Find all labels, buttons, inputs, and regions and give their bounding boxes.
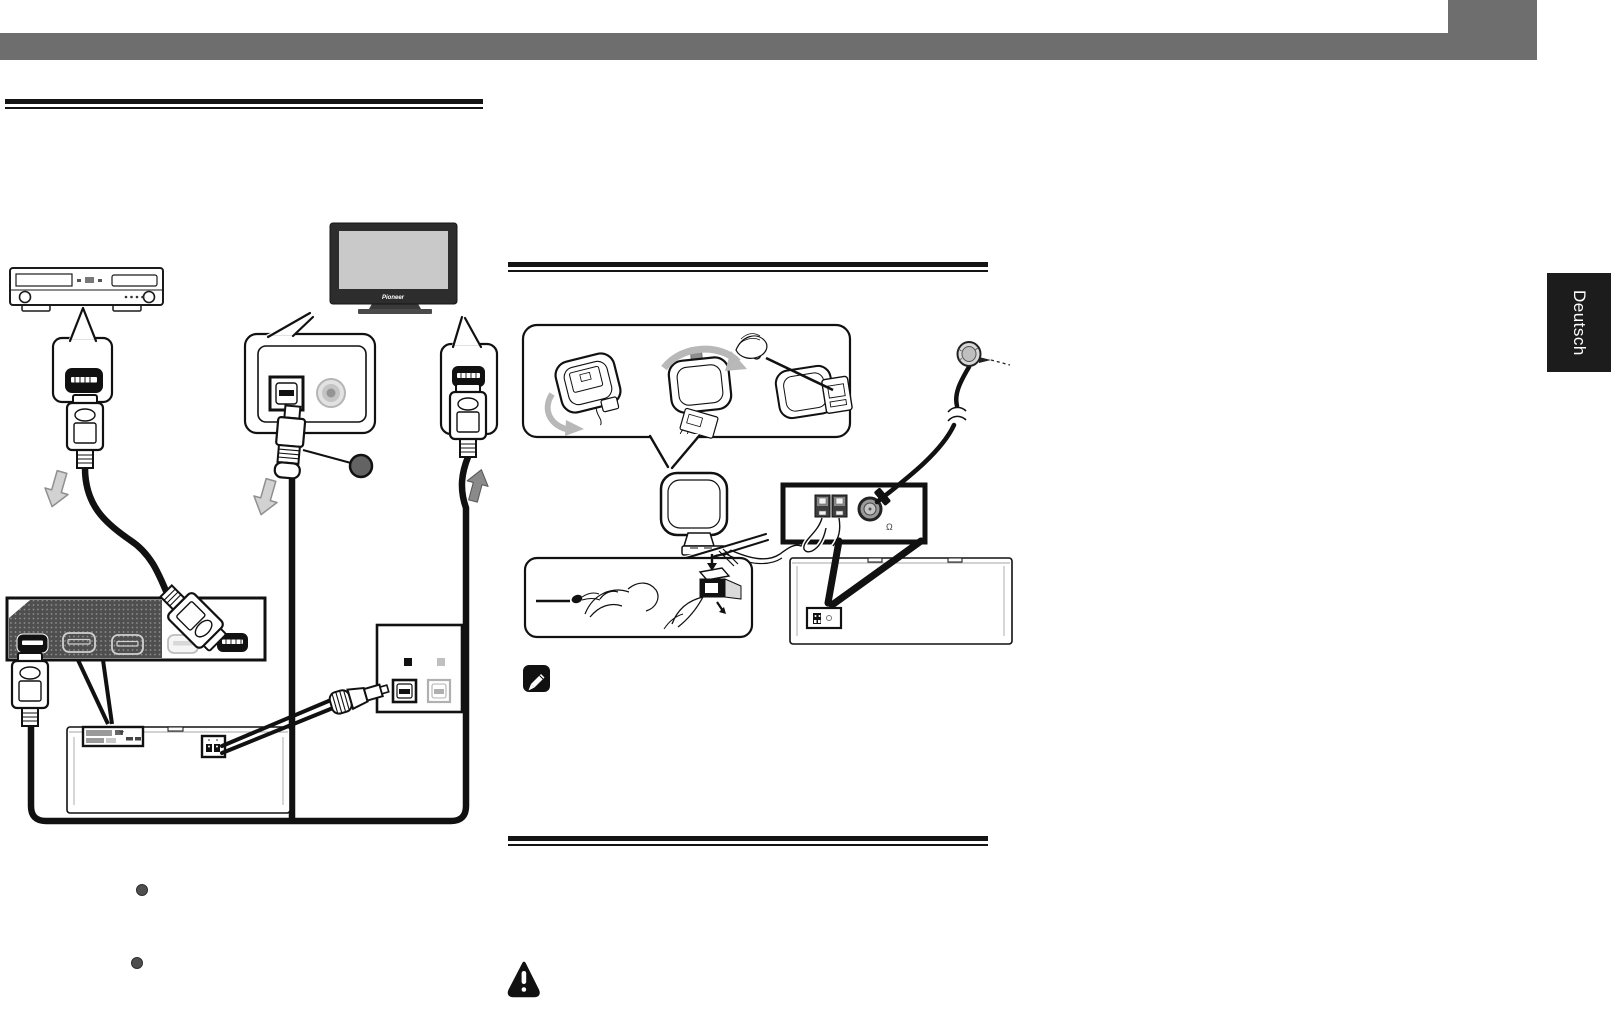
am-loop-antenna xyxy=(661,473,727,555)
bluray-player xyxy=(10,268,163,311)
manual-page: Deutsch xyxy=(0,0,1611,1018)
signal-arrow-down-2 xyxy=(250,477,283,518)
player-hdmi-callout xyxy=(53,306,112,402)
header-bar xyxy=(0,33,1537,60)
hdmi-connection-diagram: Pioneer xyxy=(0,200,500,840)
am-terminal-right xyxy=(832,495,847,517)
panel-callout-lines xyxy=(78,660,112,724)
coax-port-icon xyxy=(317,379,345,407)
list-bullet xyxy=(131,957,143,969)
hdmi-cable-from-player xyxy=(85,468,166,591)
antenna-connection-diagram: Ω xyxy=(500,300,1020,720)
note-icon xyxy=(523,665,550,692)
tv-optical-callout xyxy=(245,313,375,433)
section-heading-rule-right-bottom xyxy=(508,836,988,846)
section-heading-rule-right-top xyxy=(508,262,988,272)
language-tab-deutsch: Deutsch xyxy=(1547,273,1611,372)
antenna-terminal-panel: Ω xyxy=(783,485,925,542)
caution-icon xyxy=(505,958,565,1018)
hdmi-port-icon xyxy=(65,368,103,393)
hdmi-plug-player xyxy=(67,395,103,468)
section-heading-rule-left xyxy=(5,99,483,109)
signal-arrow-down-1 xyxy=(41,469,74,510)
cable-break-symbol xyxy=(948,407,966,421)
wire-stripping-box xyxy=(525,534,768,637)
fm-wire-antenna xyxy=(874,342,1010,506)
header-corner-tab xyxy=(1448,0,1537,60)
am-antenna-assembly-box xyxy=(523,325,852,469)
soundbar-rear-right xyxy=(790,558,1012,644)
tv-brand-logo: Pioneer xyxy=(382,295,405,301)
language-tab-label: Deutsch xyxy=(1569,290,1589,356)
callout-marker xyxy=(350,455,372,477)
hdmi-plug-tv xyxy=(450,384,486,457)
fm-antenna-pin xyxy=(958,342,1011,366)
tv: Pioneer xyxy=(330,223,457,314)
am-terminal-left xyxy=(815,495,830,517)
hdmi-plug-out xyxy=(12,653,48,726)
marker-leader-line xyxy=(303,450,351,463)
hdmi-input-panel xyxy=(7,598,265,660)
optical-input-panel xyxy=(377,625,462,712)
list-bullet xyxy=(136,884,148,896)
signal-arrow-up xyxy=(463,467,492,504)
fm-jack-ohm-label: Ω xyxy=(886,522,893,532)
soundbar-port-label xyxy=(83,727,143,746)
soundbar-antenna-connector xyxy=(807,608,841,628)
